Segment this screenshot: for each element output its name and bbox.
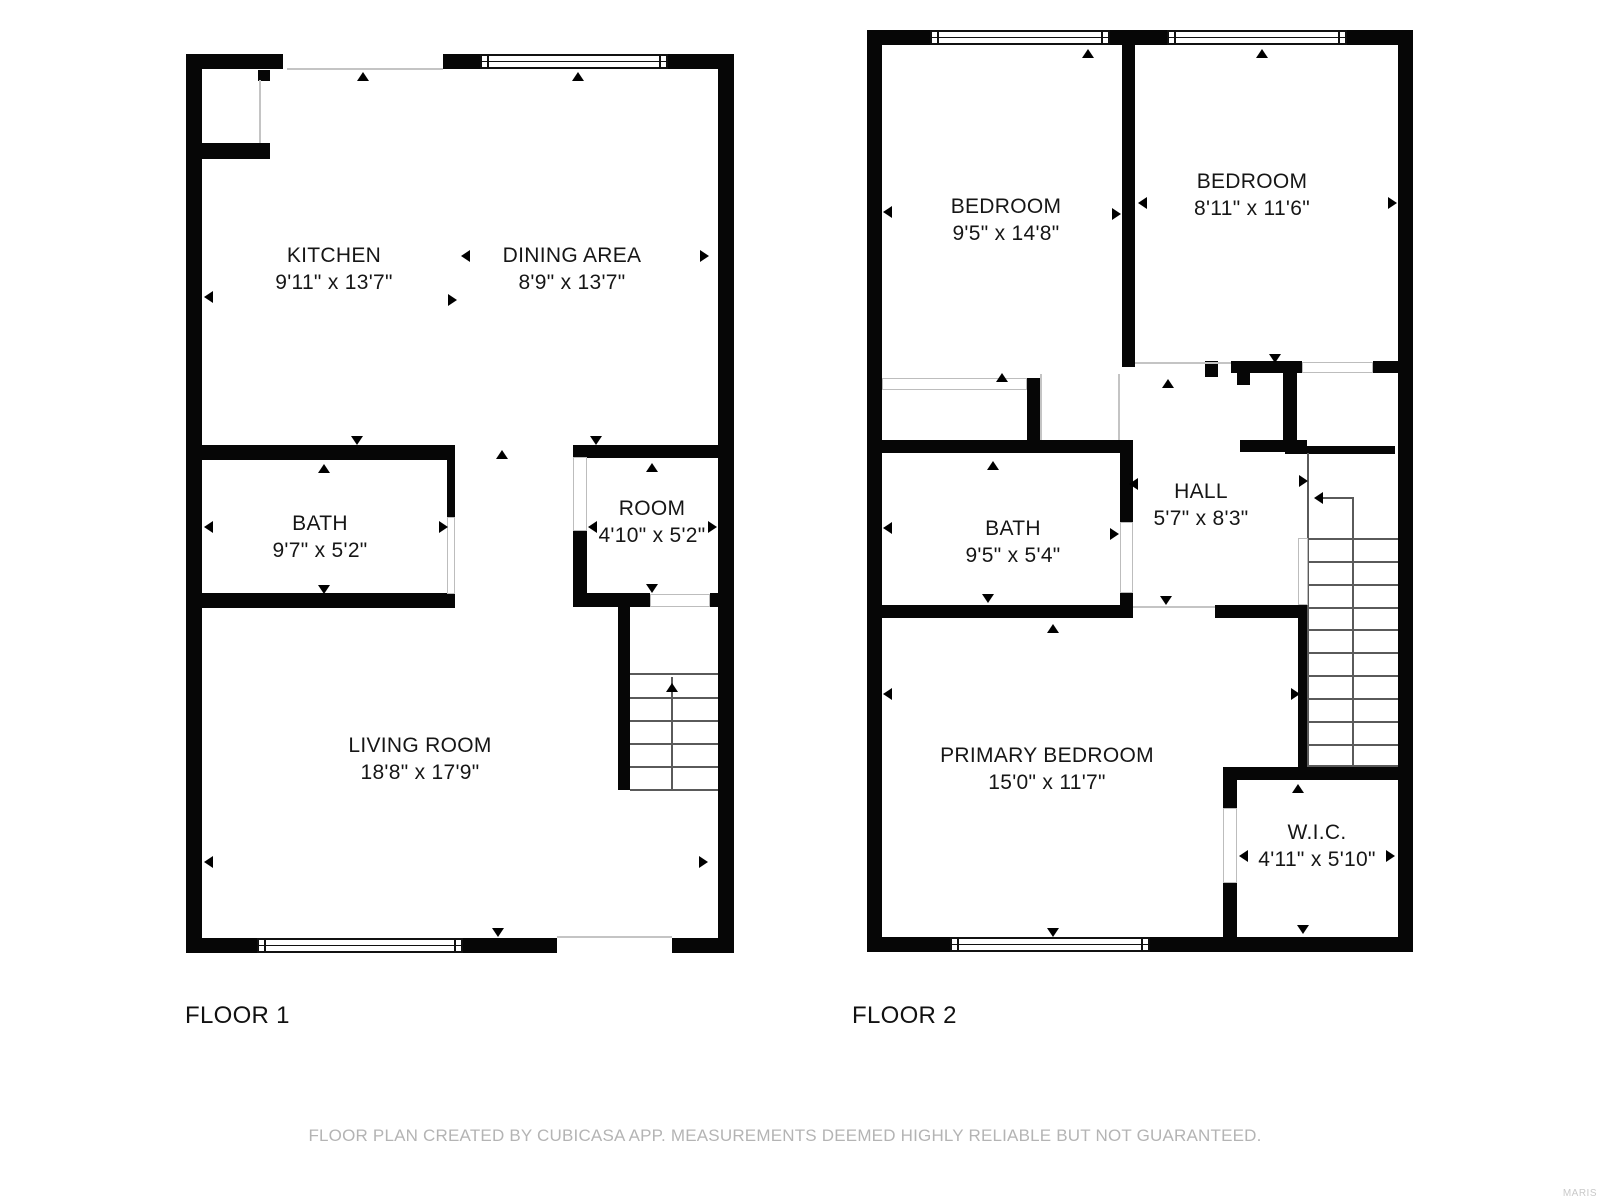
- floor-2-wall-segment: [1122, 45, 1135, 367]
- floor-1-up-arrow-icon: [496, 447, 508, 459]
- window-end-cap: [937, 32, 939, 43]
- floor-1-opening-line: [259, 80, 261, 143]
- room-name: PRIMARY BEDROOM: [940, 742, 1154, 769]
- floor-2-up-arrow-icon: [987, 458, 999, 470]
- floor-2-wall-segment: [867, 605, 1120, 618]
- floor-2-left-arrow-icon: [1135, 197, 1147, 209]
- floor-2-stair-line: [1307, 453, 1309, 765]
- window-end-cap: [957, 939, 959, 950]
- floor-1-room-label: ROOM4'10" x 5'2": [598, 495, 705, 549]
- floor-2-door-opening: [1223, 808, 1237, 883]
- floor-2-down-arrow-icon: [1160, 596, 1172, 608]
- floor-1-down-arrow-icon: [318, 585, 330, 597]
- floor-1-wall-segment: [573, 593, 650, 607]
- floor-1-right-arrow-icon: [439, 521, 451, 533]
- room-dimensions: 9'5" x 14'8": [951, 220, 1062, 247]
- floor-2-wall-segment: [1285, 446, 1395, 454]
- floor-2-wall-segment: [1237, 373, 1250, 385]
- room-dimensions: 4'10" x 5'2": [598, 522, 705, 549]
- floor-1-room-label: BATH9'7" x 5'2": [272, 510, 367, 564]
- floor-2-left-arrow-icon: [1311, 492, 1323, 504]
- floor-1-wall-segment: [186, 54, 202, 953]
- room-dimensions: 15'0" x 11'7": [940, 769, 1154, 796]
- maris-watermark: MARIS: [1563, 1188, 1597, 1199]
- floor-2-wall-segment: [867, 30, 930, 45]
- floor-2-wall-segment: [1373, 361, 1398, 373]
- floor-2-wall-segment: [867, 937, 950, 952]
- floor-2-wall-segment: [867, 440, 1133, 453]
- floor-2-door-opening: [1302, 362, 1373, 373]
- floor-1-room-label: DINING AREA8'9" x 13'7": [503, 242, 642, 296]
- window-pane-line: [482, 61, 666, 62]
- room-name: KITCHEN: [275, 242, 393, 269]
- floor-2-room-label: BEDROOM8'11" x 11'6": [1194, 168, 1310, 222]
- floor-1-wall-segment: [202, 143, 270, 159]
- floor-2-wall-segment: [1027, 378, 1040, 440]
- floor-1-stair-line: [630, 743, 718, 745]
- floor-1-room-label: KITCHEN9'11" x 13'7": [275, 242, 393, 296]
- floor-2-up-arrow-icon: [1047, 621, 1059, 633]
- floor-2-left-arrow-icon: [880, 688, 892, 700]
- room-dimensions: 9'5" x 5'4": [965, 542, 1060, 569]
- floor-2-left-arrow-icon: [880, 206, 892, 218]
- room-name: DINING AREA: [503, 242, 642, 269]
- floor-2-down-arrow-icon: [1297, 925, 1309, 937]
- floor-1-left-arrow-icon: [201, 521, 213, 533]
- floor-2-wall-segment: [1223, 883, 1237, 952]
- room-name: ROOM: [598, 495, 705, 522]
- floor-1-left-arrow-icon: [201, 291, 213, 303]
- floor-2-wall-segment: [1231, 361, 1302, 373]
- floor-2-room-label: BATH9'5" x 5'4": [965, 515, 1060, 569]
- floor-2-right-arrow-icon: [1110, 528, 1122, 540]
- floor-1-wall-segment: [463, 938, 557, 953]
- floor-1-stair-line: [630, 766, 718, 768]
- window-pane-line: [932, 37, 1108, 38]
- window-end-cap: [264, 940, 266, 951]
- floor-2-down-arrow-icon: [1047, 928, 1059, 940]
- floor-1-stair-line: [630, 720, 718, 722]
- window-pane-line: [1169, 37, 1345, 38]
- floor-1-down-arrow-icon: [590, 436, 602, 448]
- floor-1-wall-segment: [618, 607, 630, 790]
- window-end-cap: [1101, 32, 1103, 43]
- floor-2-up-arrow-icon: [1292, 781, 1304, 793]
- floor-2-wall-segment: [1283, 373, 1297, 450]
- floor-2-wall-segment: [867, 30, 882, 952]
- floor-1-up-arrow-icon: [646, 460, 658, 472]
- floor-2-label: FLOOR 2: [852, 1002, 957, 1030]
- floor-2-opening-line: [1118, 374, 1120, 440]
- floor-1-wall-segment: [718, 54, 734, 953]
- floor-2-wall-segment: [1110, 30, 1167, 45]
- floor-1-up-arrow-icon: [357, 69, 369, 81]
- floor-1-down-arrow-icon: [646, 584, 658, 596]
- room-dimensions: 8'9" x 13'7": [503, 269, 642, 296]
- room-dimensions: 8'11" x 11'6": [1194, 195, 1310, 222]
- room-name: BATH: [272, 510, 367, 537]
- floor-1-stair-line: [630, 789, 718, 791]
- room-name: LIVING ROOM: [348, 732, 491, 759]
- floor-1-wall-segment: [447, 460, 455, 517]
- floor-1-up-arrow-icon: [666, 680, 678, 692]
- floor-1-stair-line: [630, 697, 718, 699]
- floor-2-room-label: W.I.C.4'11" x 5'10": [1258, 819, 1376, 873]
- room-name: HALL: [1153, 478, 1248, 505]
- room-dimensions: 9'7" x 5'2": [272, 537, 367, 564]
- floor-2-left-arrow-icon: [1126, 478, 1138, 490]
- room-name: W.I.C.: [1258, 819, 1376, 846]
- floor-1-room-label: LIVING ROOM18'8" x 17'9": [348, 732, 491, 786]
- floor-1-door-opening: [573, 457, 587, 531]
- floor-1-door-opening: [650, 594, 710, 607]
- room-dimensions: 9'11" x 13'7": [275, 269, 393, 296]
- floor-1-stair-line: [671, 677, 673, 789]
- floor-1-wall-segment: [672, 938, 734, 953]
- room-dimensions: 18'8" x 17'9": [348, 759, 491, 786]
- floor-1-right-arrow-icon: [448, 294, 460, 306]
- floor-1-opening-line: [557, 936, 672, 938]
- floor-2-down-arrow-icon: [1269, 354, 1281, 366]
- window-end-cap: [1174, 32, 1176, 43]
- floor-1-right-arrow-icon: [708, 521, 720, 533]
- floor-2-room-label: BEDROOM9'5" x 14'8": [951, 193, 1062, 247]
- floor-1-left-arrow-icon: [458, 250, 470, 262]
- floorplan-canvas: FLOOR 1 FLOOR 2 FLOOR PLAN CREATED BY CU…: [0, 0, 1600, 1200]
- room-name: BEDROOM: [1194, 168, 1310, 195]
- floor-2-window: [1167, 30, 1347, 45]
- floor-2-stair-line: [1352, 497, 1354, 765]
- window-end-cap: [659, 56, 661, 67]
- floor-2-wall-segment: [1398, 30, 1413, 952]
- window-pane-line: [259, 945, 461, 946]
- floor-2-wall-segment: [1223, 767, 1237, 808]
- floor-2-wall-segment: [1150, 937, 1413, 952]
- window-end-cap: [1141, 939, 1143, 950]
- floor-1-wall-segment: [443, 54, 480, 69]
- floor-2-door-opening: [1298, 538, 1308, 605]
- floor-2-right-arrow-icon: [1386, 850, 1398, 862]
- floor-2-wall-segment: [1223, 767, 1398, 780]
- floor-1-wall-segment: [186, 938, 257, 953]
- floor-2-up-arrow-icon: [1256, 46, 1268, 58]
- window-end-cap: [454, 940, 456, 951]
- floor-1-window: [480, 54, 668, 69]
- floor-1-stair-line: [630, 673, 718, 675]
- floor-2-opening-line: [1040, 374, 1042, 440]
- window-pane-line: [952, 944, 1148, 945]
- floor-2-left-arrow-icon: [1236, 850, 1248, 862]
- floor-2-window: [930, 30, 1110, 45]
- floor-1-left-arrow-icon: [585, 521, 597, 533]
- floor-2-right-arrow-icon: [1388, 197, 1400, 209]
- floor-2-opening-line: [1133, 606, 1215, 608]
- floor-1-down-arrow-icon: [492, 928, 504, 940]
- floor-2-up-arrow-icon: [1162, 376, 1174, 388]
- floor-2-opening-line: [1135, 362, 1231, 364]
- floor-1-window: [257, 938, 463, 953]
- floor-2-up-arrow-icon: [1082, 46, 1094, 58]
- window-end-cap: [487, 56, 489, 67]
- floor-2-wall-segment: [1215, 605, 1308, 618]
- floor-1-wall-segment: [186, 445, 455, 460]
- floor-2-room-label: PRIMARY BEDROOM15'0" x 11'7": [940, 742, 1154, 796]
- floor-1-down-arrow-icon: [351, 436, 363, 448]
- floor-2-room-label: HALL5'7" x 8'3": [1153, 478, 1248, 532]
- window-end-cap: [1338, 32, 1340, 43]
- floor-1-wall-segment: [186, 54, 283, 69]
- floor-2-right-arrow-icon: [1291, 688, 1303, 700]
- floor-1-left-arrow-icon: [201, 856, 213, 868]
- floor-2-up-arrow-icon: [996, 370, 1008, 382]
- room-name: BATH: [965, 515, 1060, 542]
- floor-2-wall-segment: [1120, 593, 1133, 618]
- floor-2-right-arrow-icon: [1299, 475, 1311, 487]
- disclaimer-text: FLOOR PLAN CREATED BY CUBICASA APP. MEAS…: [0, 1126, 1570, 1146]
- floor-1-label: FLOOR 1: [185, 1002, 290, 1030]
- floor-1-wall-segment: [710, 593, 734, 607]
- floor-2-stair-line: [1307, 765, 1398, 767]
- room-dimensions: 4'11" x 5'10": [1258, 846, 1376, 873]
- floor-1-up-arrow-icon: [572, 69, 584, 81]
- floor-2-down-arrow-icon: [982, 594, 994, 606]
- floor-1-right-arrow-icon: [700, 250, 712, 262]
- floor-2-left-arrow-icon: [880, 522, 892, 534]
- floor-2-right-arrow-icon: [1112, 208, 1124, 220]
- floor-1-right-arrow-icon: [699, 856, 711, 868]
- room-name: BEDROOM: [951, 193, 1062, 220]
- room-dimensions: 5'7" x 8'3": [1153, 505, 1248, 532]
- floor-1-up-arrow-icon: [318, 461, 330, 473]
